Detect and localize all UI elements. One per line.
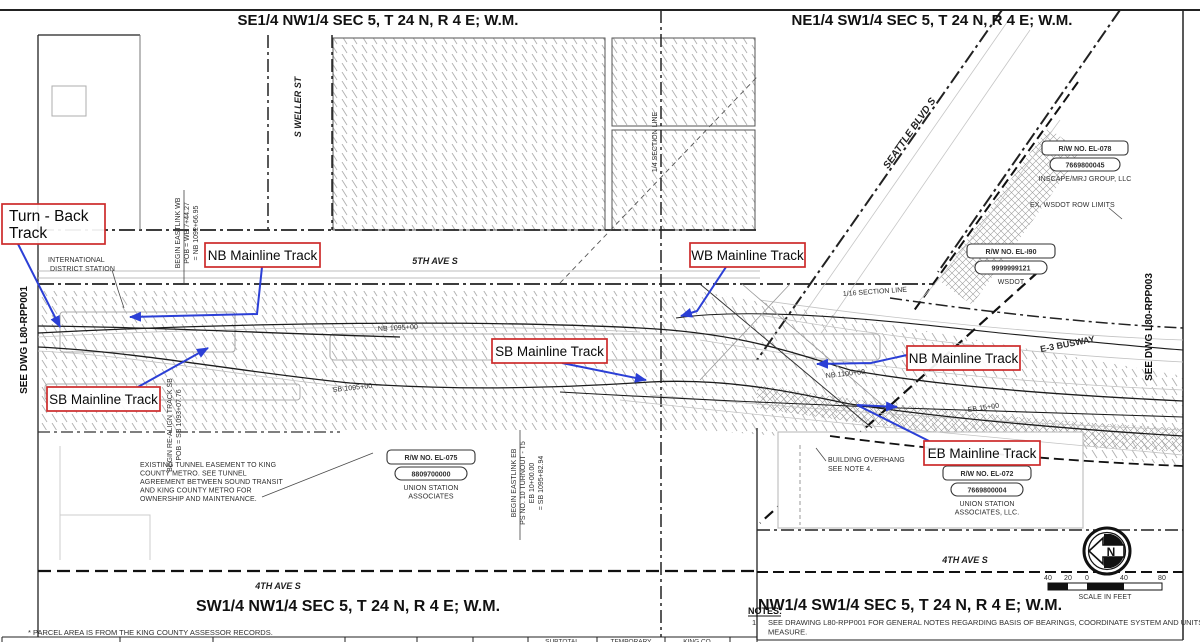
wsdot-row-leader — [1109, 208, 1122, 219]
scale-tick-2: 0 — [1085, 575, 1089, 582]
label-turn-back-line2: Track — [9, 225, 47, 242]
label-wb-mainline: WB Mainline Track — [690, 243, 805, 267]
fifth-ave-curbs — [38, 271, 760, 278]
building-overhang-1: BUILDING OVERHANG — [828, 457, 905, 464]
fifth-ave-label: 5TH AVE S — [412, 256, 458, 266]
begin-eastlink-eb-4: = SB 1095+82.94 — [538, 456, 545, 511]
table-stub-col1: SUBTOTAL — [545, 639, 579, 642]
weller-st-label: S WELLER ST — [293, 75, 303, 137]
label-sb-center-text: SB Mainline Track — [495, 344, 604, 359]
title-bottom-left: SW1/4 NW1/4 SEC 5, T 24 N, R 4 E; W.M. — [196, 598, 500, 615]
begin-realign-sb-1: BEGIN RE-ALIGN TRACK SB — [167, 378, 174, 472]
blvd-inner-lines — [800, 18, 1030, 335]
parcel-el072: R/W NO. EL-072 7669800004 UNION STATION … — [943, 466, 1031, 517]
title-top-right: NE1/4 SW1/4 SEC 5, T 24 N, R 4 E; W.M. — [792, 12, 1073, 29]
parcel-el090-num: 9999999121 — [992, 266, 1031, 273]
label-sb-mainline-left: SB Mainline Track — [47, 387, 160, 411]
begin-eastlink-eb-3: EB 10+00.00 — [529, 463, 536, 504]
footer-area: * PARCEL AREA IS FROM THE KING COUNTY AS… — [2, 628, 757, 642]
top-center-block — [333, 38, 605, 230]
fourth-ave-right-label: 4TH AVE S — [941, 555, 988, 565]
tunnel-easement-2: COUNTY METRO. SEE TUNNEL — [140, 471, 247, 478]
note1-number: 1. — [752, 618, 758, 627]
scale-tick-3: 40 — [1120, 575, 1128, 582]
wsdot-row-label: EX. WSDOT ROW LIMITS — [1030, 202, 1115, 209]
station-name-line1: INTERNATIONAL — [48, 257, 105, 264]
parcel-el078-num: 7669800045 — [1066, 163, 1105, 170]
begin-eastlink-wb-3: = NB 1092+66.95 — [193, 205, 200, 260]
note1-line2: MEASURE. — [768, 628, 807, 637]
top-right-block-b — [612, 130, 755, 230]
north-letter: N — [1107, 545, 1116, 559]
label-wb-text: WB Mainline Track — [691, 248, 804, 263]
scale-tick-1: 20 — [1064, 575, 1072, 582]
label-nb-mainline-left: NB Mainline Track — [205, 243, 320, 267]
title-top-left: SE1/4 NW1/4 SEC 5, T 24 N, R 4 E; W.M. — [238, 12, 519, 29]
parcel-el075-num: 8809700000 — [412, 472, 451, 479]
wsdot-row-limit-line — [913, 82, 1078, 312]
parcel-el072-owner1: UNION STATION — [959, 501, 1014, 508]
table-stub-col2: TEMPORARY — [610, 639, 652, 642]
label-nb-left-text: NB Mainline Track — [208, 248, 318, 263]
scale-caption: SCALE IN FEET — [1078, 594, 1132, 601]
scale-tick-0: 40 — [1044, 575, 1052, 582]
quarter-section-label: 1/4 SECTION LINE — [652, 112, 659, 173]
begin-realign-sb-2: POB = SB 1093+07.76 — [176, 389, 183, 460]
scale-bar-seg1 — [1048, 583, 1068, 590]
scale-tick-4: 80 — [1158, 575, 1166, 582]
parcel-area-note: * PARCEL AREA IS FROM THE KING COUNTY AS… — [28, 628, 273, 637]
parcel-el090-owner: WSDOT — [998, 279, 1025, 286]
parcel-el078-owner: INSCAPE/MRJ GROUP, LLC — [1039, 176, 1132, 183]
north-arrow-icon: N — [1084, 528, 1130, 574]
label-sb-mainline-center: SB Mainline Track — [492, 339, 607, 363]
see-dwg-left: SEE DWG L80-RPP001 — [19, 286, 30, 394]
label-eb-mainline: EB Mainline Track — [924, 441, 1040, 465]
notes-heading: NOTES: — [748, 606, 782, 616]
scale-bar-seg2 — [1087, 583, 1124, 590]
label-sb-left-text: SB Mainline Track — [49, 392, 158, 407]
tunnel-easement-leader — [262, 453, 373, 497]
title-bottom-right: NW1/4 SW1/4 SEC 5, T 24 N, R 4 E; W.M. — [758, 597, 1062, 614]
drawing-sheet: SE1/4 NW1/4 SEC 5, T 24 N, R 4 E; W.M. N… — [0, 0, 1200, 642]
tunnel-easement-1: EXISTING TUNNEL EASEMENT TO KING — [140, 462, 276, 469]
begin-eastlink-eb-2: PS NO. 10 TURNOUT - T5 — [520, 441, 527, 525]
parcel-el075-owner1: UNION STATION — [403, 485, 458, 492]
fourth-ave-left-label: 4TH AVE S — [254, 581, 301, 591]
busway-label: E-3 BUSWAY — [1039, 334, 1095, 354]
parcel-el075-id: R/W NO. EL-075 — [405, 455, 458, 462]
label-nb-mainline-right: NB Mainline Track — [907, 346, 1020, 370]
see-dwg-right: SEE DWG L80-RPP003 — [1144, 273, 1155, 381]
table-stub-col3: KING CO — [683, 639, 710, 642]
bottom-border-line — [2, 637, 1183, 640]
parcel-el075-owner2: ASSOCIATES — [408, 494, 453, 501]
parcel-el072-num: 7669800004 — [968, 488, 1007, 495]
busway-north-edge — [890, 298, 1183, 328]
label-eb-text: EB Mainline Track — [928, 446, 1037, 461]
begin-eastlink-wb-1: BEGIN EASTLINK WB — [175, 197, 182, 268]
parcel-el072-id: R/W NO. EL-072 — [961, 471, 1014, 478]
building-overhang-2: SEE NOTE 4. — [828, 466, 872, 473]
top-right-block-a — [612, 38, 755, 126]
note1-line1: SEE DRAWING L80-RPP001 FOR GENERAL NOTES… — [768, 618, 1200, 627]
station-name-line2: DISTRICT STATION — [50, 266, 115, 273]
small-building-nw — [52, 86, 86, 116]
parcel-el072-owner2: ASSOCIATES, LLC. — [955, 510, 1020, 517]
tunnel-easement-3: AGREEMENT BETWEEN SOUND TRANSIT — [140, 479, 283, 486]
scale-bar: 40 20 0 40 80 SCALE IN FEET — [1044, 575, 1166, 601]
parcel-el078-id: R/W NO. EL-078 — [1059, 146, 1112, 153]
parcel-el090-id: R/W NO. EL-I90 — [986, 249, 1037, 256]
label-nb-right-text: NB Mainline Track — [909, 351, 1019, 366]
label-turn-back-line1: Turn - Back — [9, 208, 89, 225]
begin-eastlink-eb-1: BEGIN EASTLINK EB — [511, 448, 518, 517]
parcel-el075: R/W NO. EL-075 8809700000 UNION STATION … — [387, 450, 475, 501]
sw-building-outlines — [60, 446, 150, 560]
tunnel-easement-5: OWNERSHIP AND MAINTENANCE. — [140, 496, 257, 503]
begin-eastlink-wb-2: POB = WB 7+44.27 — [184, 202, 191, 264]
label-turn-back-track: Turn - Back Track — [2, 204, 105, 244]
parcel-el078: R/W NO. EL-078 7669800045 INSCAPE/MRJ GR… — [1039, 141, 1132, 183]
tunnel-easement-4: AND KING COUNTY METRO FOR — [140, 488, 252, 495]
